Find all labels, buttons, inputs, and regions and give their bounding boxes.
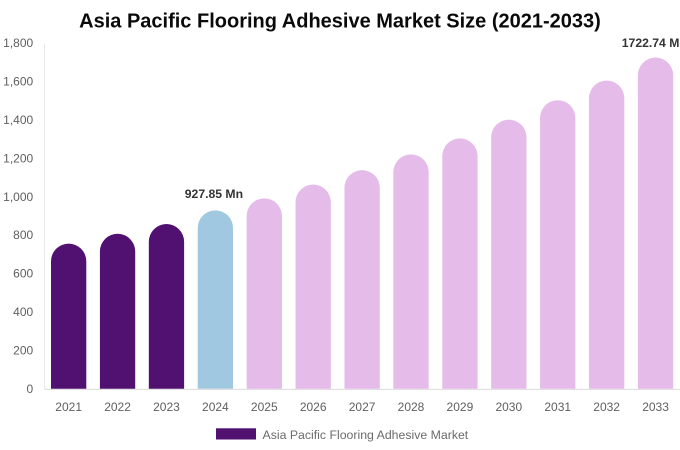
svg-text:2023: 2023 xyxy=(153,400,180,414)
svg-text:2032: 2032 xyxy=(593,400,620,414)
svg-text:2027: 2027 xyxy=(349,400,376,414)
svg-text:800: 800 xyxy=(13,228,33,242)
svg-text:1,800: 1,800 xyxy=(3,36,33,50)
svg-text:Asia Pacific Flooring Adhesive: Asia Pacific Flooring Adhesive Market xyxy=(263,428,469,442)
svg-text:600: 600 xyxy=(13,267,33,281)
svg-text:927.85 Mn: 927.85 Mn xyxy=(185,187,243,201)
svg-text:0: 0 xyxy=(27,382,34,396)
svg-text:1722.74 Mn: 1722.74 Mn xyxy=(622,36,680,50)
svg-text:2031: 2031 xyxy=(544,400,571,414)
svg-text:2028: 2028 xyxy=(398,400,425,414)
svg-text:2033: 2033 xyxy=(642,400,669,414)
svg-text:2024: 2024 xyxy=(202,400,229,414)
svg-text:2026: 2026 xyxy=(300,400,327,414)
svg-text:1,000: 1,000 xyxy=(3,190,33,204)
svg-text:2029: 2029 xyxy=(447,400,474,414)
svg-text:2025: 2025 xyxy=(251,400,278,414)
svg-text:2022: 2022 xyxy=(104,400,131,414)
svg-text:1,400: 1,400 xyxy=(3,113,33,127)
svg-text:1,600: 1,600 xyxy=(3,74,33,88)
svg-text:2030: 2030 xyxy=(495,400,522,414)
svg-text:200: 200 xyxy=(13,344,33,358)
svg-text:1,200: 1,200 xyxy=(3,151,33,165)
svg-text:Asia Pacific Flooring Adhesive: Asia Pacific Flooring Adhesive Market Si… xyxy=(79,11,601,33)
svg-text:400: 400 xyxy=(13,305,33,319)
svg-text:2021: 2021 xyxy=(55,400,82,414)
